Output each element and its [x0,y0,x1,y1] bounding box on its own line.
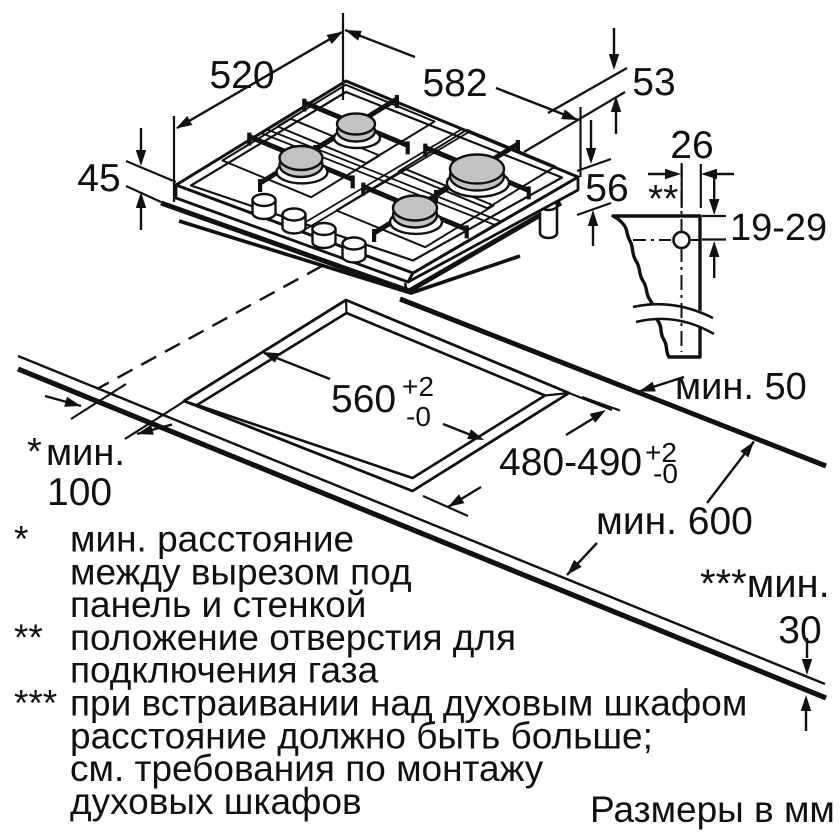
svg-text:мин.: мин. [46,432,125,474]
svg-text:+2: +2 [402,371,434,402]
svg-text:-0: -0 [406,401,431,432]
svg-text:мин. 50: мин. 50 [675,366,807,408]
svg-text:45: 45 [77,157,120,200]
svg-text:духовых шкафов: духовых шкафов [70,781,362,822]
svg-text:*: * [27,431,42,473]
svg-text:***мин.: ***мин. [700,562,830,606]
svg-text:мин. 600: мин. 600 [596,500,753,543]
svg-text:100: 100 [47,471,112,514]
svg-text:***: *** [14,683,57,724]
svg-text:**: ** [14,617,43,658]
svg-text:*: * [14,519,28,560]
svg-text:19-29: 19-29 [730,207,827,249]
svg-text:-0: -0 [653,458,678,489]
svg-text:**: ** [648,178,678,221]
svg-text:26: 26 [670,124,713,167]
svg-text:582: 582 [422,62,487,105]
svg-text:560: 560 [331,378,396,421]
svg-text:520: 520 [209,54,274,97]
svg-text:53: 53 [632,61,675,104]
svg-text:Размеры в мм: Размеры в мм [590,789,835,830]
svg-text:480-490: 480-490 [499,441,642,484]
svg-text:56: 56 [585,167,628,210]
svg-text:30: 30 [778,609,821,652]
